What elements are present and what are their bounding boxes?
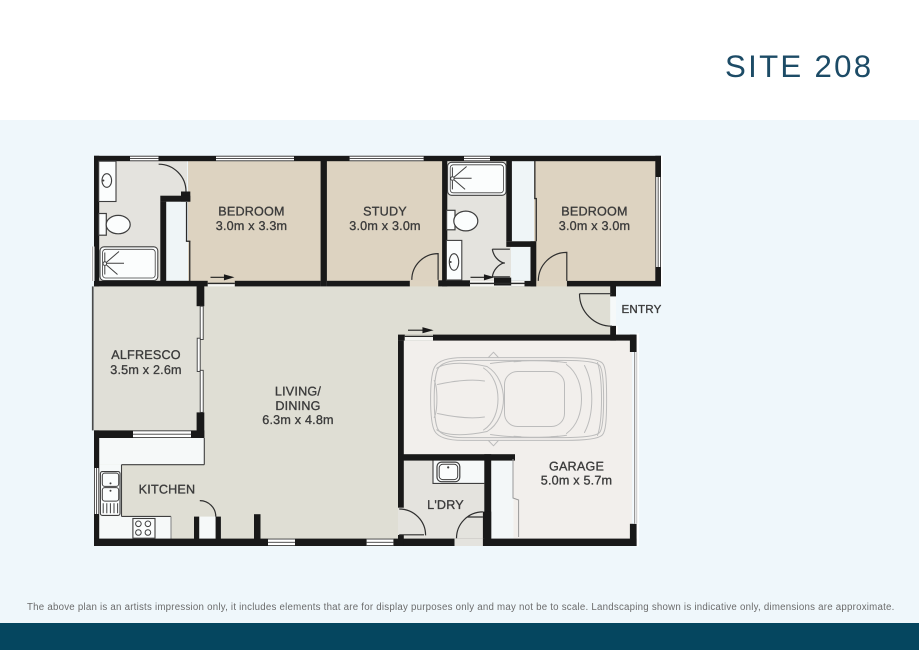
svg-text:3.0m x 3.0m: 3.0m x 3.0m — [559, 219, 631, 233]
svg-text:ALFRESCO: ALFRESCO — [111, 348, 180, 362]
svg-text:3.0m x 3.0m: 3.0m x 3.0m — [349, 219, 421, 233]
svg-text:GARAGE: GARAGE — [549, 459, 604, 473]
svg-text:L'DRY: L'DRY — [427, 498, 464, 512]
svg-text:ENTRY: ENTRY — [621, 303, 661, 316]
svg-text:STUDY: STUDY — [363, 205, 407, 219]
svg-text:3.0m x 3.3m: 3.0m x 3.3m — [216, 219, 288, 233]
svg-text:BEDROOM: BEDROOM — [218, 205, 284, 219]
svg-text:3.5m x 2.6m: 3.5m x 2.6m — [110, 363, 182, 377]
svg-text:6.3m x 4.8m: 6.3m x 4.8m — [262, 413, 334, 427]
svg-text:KITCHEN: KITCHEN — [139, 483, 196, 497]
svg-text:5.0m x 5.7m: 5.0m x 5.7m — [541, 474, 613, 488]
svg-text:LIVING/: LIVING/ — [275, 385, 321, 399]
svg-text:BEDROOM: BEDROOM — [561, 205, 627, 219]
svg-text:DINING: DINING — [275, 399, 320, 413]
